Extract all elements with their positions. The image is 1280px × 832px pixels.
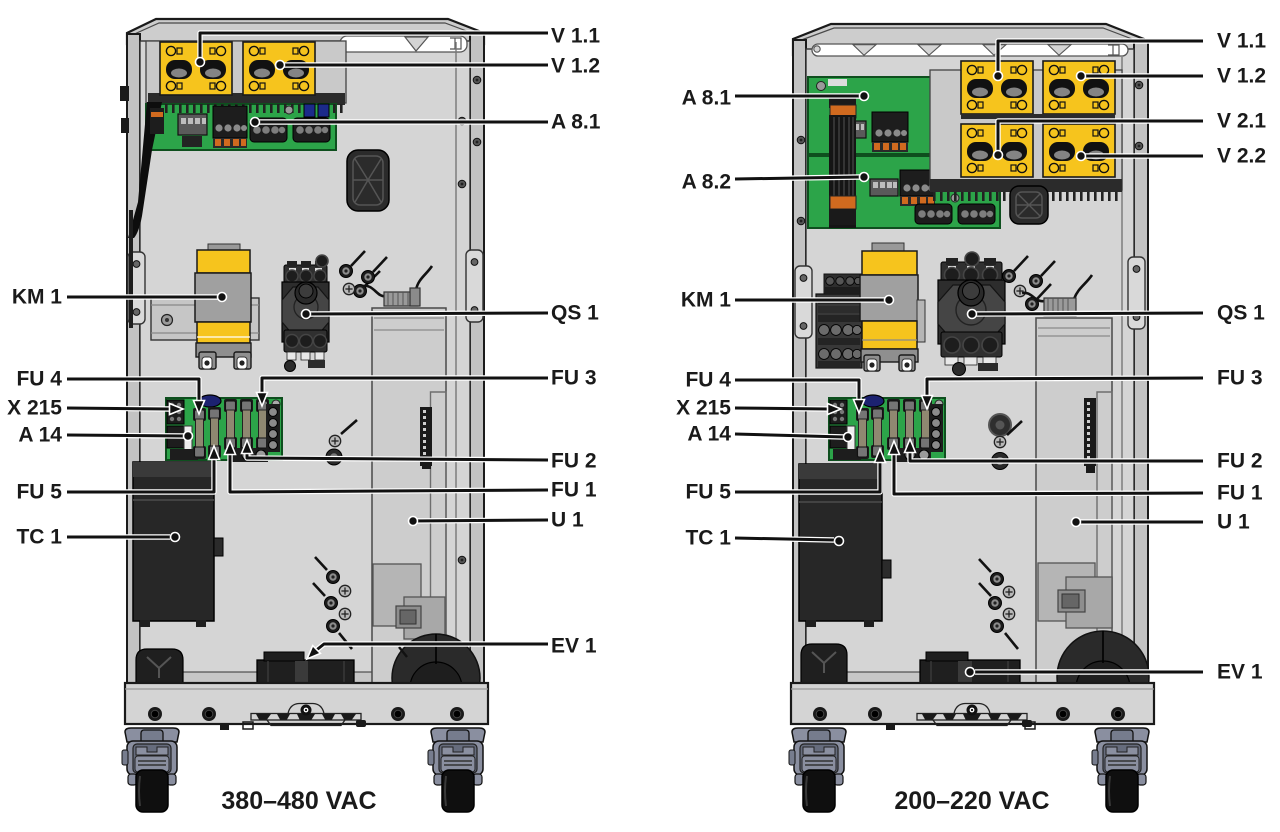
svg-text:FU 2: FU 2 — [1217, 450, 1263, 473]
svg-text:A 14: A 14 — [18, 424, 62, 447]
svg-text:FU 1: FU 1 — [1217, 482, 1263, 505]
svg-text:X 215: X 215 — [7, 397, 62, 420]
svg-text:TC 1: TC 1 — [685, 527, 731, 550]
svg-text:200–220 VAC: 200–220 VAC — [894, 787, 1049, 815]
svg-text:QS 1: QS 1 — [1217, 302, 1265, 325]
svg-text:FU 2: FU 2 — [551, 450, 597, 473]
svg-text:FU 3: FU 3 — [551, 367, 597, 390]
svg-text:V 2.1: V 2.1 — [1217, 110, 1266, 133]
svg-text:V 2.2: V 2.2 — [1217, 145, 1266, 168]
svg-text:A 14: A 14 — [687, 423, 731, 446]
svg-text:V 1.2: V 1.2 — [551, 55, 600, 78]
svg-text:V 1.1: V 1.1 — [1217, 30, 1266, 53]
svg-text:V 1.2: V 1.2 — [1217, 65, 1266, 88]
svg-text:V 1.1: V 1.1 — [551, 25, 600, 48]
svg-text:QS 1: QS 1 — [551, 302, 599, 325]
svg-text:A 8.2: A 8.2 — [682, 171, 731, 194]
svg-text:380–480 VAC: 380–480 VAC — [221, 787, 376, 815]
svg-text:U 1: U 1 — [551, 509, 584, 532]
svg-text:KM 1: KM 1 — [12, 286, 62, 309]
svg-text:TC 1: TC 1 — [16, 526, 62, 549]
svg-text:U 1: U 1 — [1217, 511, 1250, 534]
svg-text:EV 1: EV 1 — [1217, 661, 1263, 684]
svg-text:X 215: X 215 — [676, 397, 731, 420]
svg-text:A 8.1: A 8.1 — [551, 111, 601, 134]
svg-text:FU 1: FU 1 — [551, 479, 597, 502]
svg-text:A 8.1: A 8.1 — [682, 87, 732, 110]
svg-text:FU 4: FU 4 — [16, 368, 62, 391]
svg-text:FU 4: FU 4 — [685, 369, 731, 392]
svg-text:FU 5: FU 5 — [16, 481, 62, 504]
svg-text:FU 5: FU 5 — [685, 481, 731, 504]
svg-text:KM 1: KM 1 — [681, 289, 731, 312]
svg-text:FU 3: FU 3 — [1217, 367, 1263, 390]
svg-text:EV 1: EV 1 — [551, 635, 597, 658]
